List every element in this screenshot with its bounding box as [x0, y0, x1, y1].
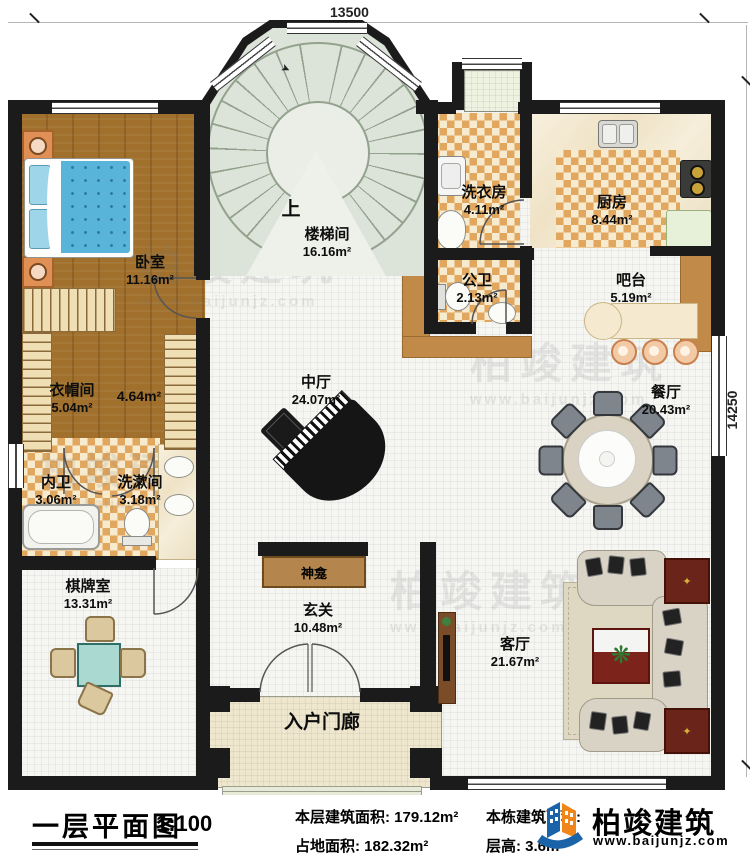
- wall-laundry-left: [424, 100, 438, 334]
- room-label-cloakroom: 衣帽间5.04m²: [49, 382, 94, 417]
- room-label-porch: 入户门廊: [284, 712, 360, 734]
- dimension-top-value: 13500: [330, 4, 369, 20]
- sofa-pillow: [662, 608, 683, 627]
- dining-window-right: [711, 336, 727, 456]
- wall-wc-bottom-left: [424, 322, 476, 334]
- room-label-bedroom: 卧室11.16m²: [126, 254, 174, 289]
- wardrobe-right: [164, 334, 198, 450]
- room-label-master-bath: 内卫3.06m²: [35, 474, 76, 509]
- game-chair: [50, 648, 76, 678]
- wall-foyer-living: [420, 542, 436, 690]
- door-arc-game-room: [152, 566, 200, 616]
- laundry-bay-floor: [464, 70, 522, 112]
- toilet-washroom: [122, 508, 150, 542]
- wall-shrine: [258, 542, 368, 556]
- wall-bedroom-right-lower: [196, 318, 210, 558]
- wall-laundry-kitchen-upper: [520, 100, 532, 198]
- wall-bath-bottom: [8, 556, 156, 570]
- bar-counter-cap: [584, 302, 622, 340]
- sofa-pillow: [664, 638, 685, 657]
- wall-bottom-left: [8, 776, 218, 790]
- porch-column-br: [410, 748, 442, 778]
- sofa-pillow: [611, 715, 629, 735]
- floor-area-text: 本层建筑面积: 179.12m²: [295, 806, 458, 827]
- stair-bay-window-top: [287, 22, 367, 34]
- tv-cabinet: [438, 612, 456, 704]
- room-label-dining: 餐厅20.43m²: [642, 384, 690, 419]
- kitchen-double-sink: [598, 120, 638, 148]
- shrine-shelf: 神龛: [262, 556, 366, 588]
- stove: [680, 160, 712, 198]
- room-label-stairwell: 楼梯间16.16m²: [303, 226, 351, 261]
- room-label-bar: 吧台5.19m²: [610, 272, 651, 307]
- laundry-bay-window: [462, 58, 522, 70]
- bar-stool: [642, 339, 668, 365]
- sofa-pillow: [607, 555, 625, 575]
- room-label-game-room: 棋牌室13.31m²: [64, 578, 112, 613]
- sofa-pillow: [589, 711, 607, 731]
- coffee-table: ❋: [592, 628, 650, 684]
- shrine-label: 神龛: [301, 563, 327, 582]
- dining-chair: [593, 391, 623, 416]
- porch-floor: [208, 696, 442, 788]
- porch-column-tl: [198, 686, 230, 712]
- bar-stool: [611, 339, 637, 365]
- living-window-bottom: [468, 778, 666, 790]
- dimension-line-top: [8, 22, 748, 23]
- corridor-area-label: 4.64m²: [117, 388, 161, 404]
- dining-chair: [539, 446, 564, 476]
- plant: ❋: [611, 644, 631, 668]
- plan-scale: 1:100: [156, 811, 212, 837]
- kitchen-window-top: [560, 102, 660, 114]
- washroom-sink: [164, 494, 194, 516]
- floor-transition-horizontal: [402, 336, 532, 358]
- sofa-pillow: [662, 670, 681, 688]
- side-table: ✦: [664, 558, 710, 604]
- sheet-fold: [47, 161, 61, 253]
- door-arc-entry-right: [310, 640, 362, 694]
- wall-foyer-bottom-left: [226, 688, 260, 702]
- room-label-laundry: 洗衣房4.11m²: [461, 184, 506, 219]
- wall-laundry-top-left: [424, 102, 456, 114]
- sofa-pillow: [633, 711, 652, 732]
- game-chair: [120, 648, 146, 678]
- nightstand: [22, 256, 54, 288]
- porch-column-bl: [198, 748, 230, 778]
- tv: [443, 635, 450, 681]
- room-label-foyer: 玄关10.48m²: [294, 602, 342, 637]
- game-chair: [85, 616, 115, 642]
- sofa-pillow: [629, 557, 647, 577]
- wall-kitchen-bottom-stub: [650, 246, 712, 256]
- plant-small: [442, 617, 451, 626]
- logo-icon: [531, 797, 589, 857]
- dining-chair: [653, 446, 678, 476]
- bath-window-left: [8, 444, 24, 488]
- wall-bedroom-right-upper: [196, 100, 210, 280]
- game-table: [77, 643, 121, 687]
- bed: [24, 158, 134, 258]
- wardrobe-left: [22, 332, 52, 452]
- fridge: [666, 210, 712, 248]
- floor-plan: ➤: [0, 0, 750, 862]
- dimension-line-right: [746, 25, 747, 777]
- wardrobe-top: [22, 288, 116, 332]
- title-underline-thick: [32, 842, 198, 846]
- title-underline-thin: [32, 849, 198, 850]
- room-label-public-wc: 公卫2.13m²: [456, 272, 497, 307]
- room-label-washroom: 洗漱间3.18m²: [117, 474, 162, 509]
- bedroom-window-top: [52, 102, 158, 114]
- wall-laundry-wc-divider: [424, 248, 534, 260]
- side-table: ✦: [664, 708, 710, 754]
- wall-foyer-bottom-right: [360, 688, 414, 702]
- logo-url: www.baijunjz.com: [593, 833, 729, 848]
- wall-wc-bottom-right: [506, 322, 532, 334]
- room-label-central-hall: 中厅24.07m²: [292, 374, 340, 409]
- washroom-sink: [164, 456, 194, 478]
- blanket: [53, 161, 130, 253]
- room-label-living: 客厅21.67m²: [491, 636, 539, 671]
- title-block: 一层平面图 1:100 本层建筑面积: 179.12m² 占地面积: 182.3…: [0, 795, 750, 862]
- bar-stool: [673, 339, 699, 365]
- stair-up-label: 上: [281, 199, 300, 221]
- dining-chair: [593, 505, 623, 530]
- door-arc-entry-left: [258, 640, 310, 694]
- sofa-pillow: [585, 557, 604, 578]
- room-label-kitchen: 厨房8.44m²: [591, 194, 632, 229]
- bathtub: [22, 504, 100, 550]
- land-area-text: 占地面积: 182.32m²: [295, 835, 428, 856]
